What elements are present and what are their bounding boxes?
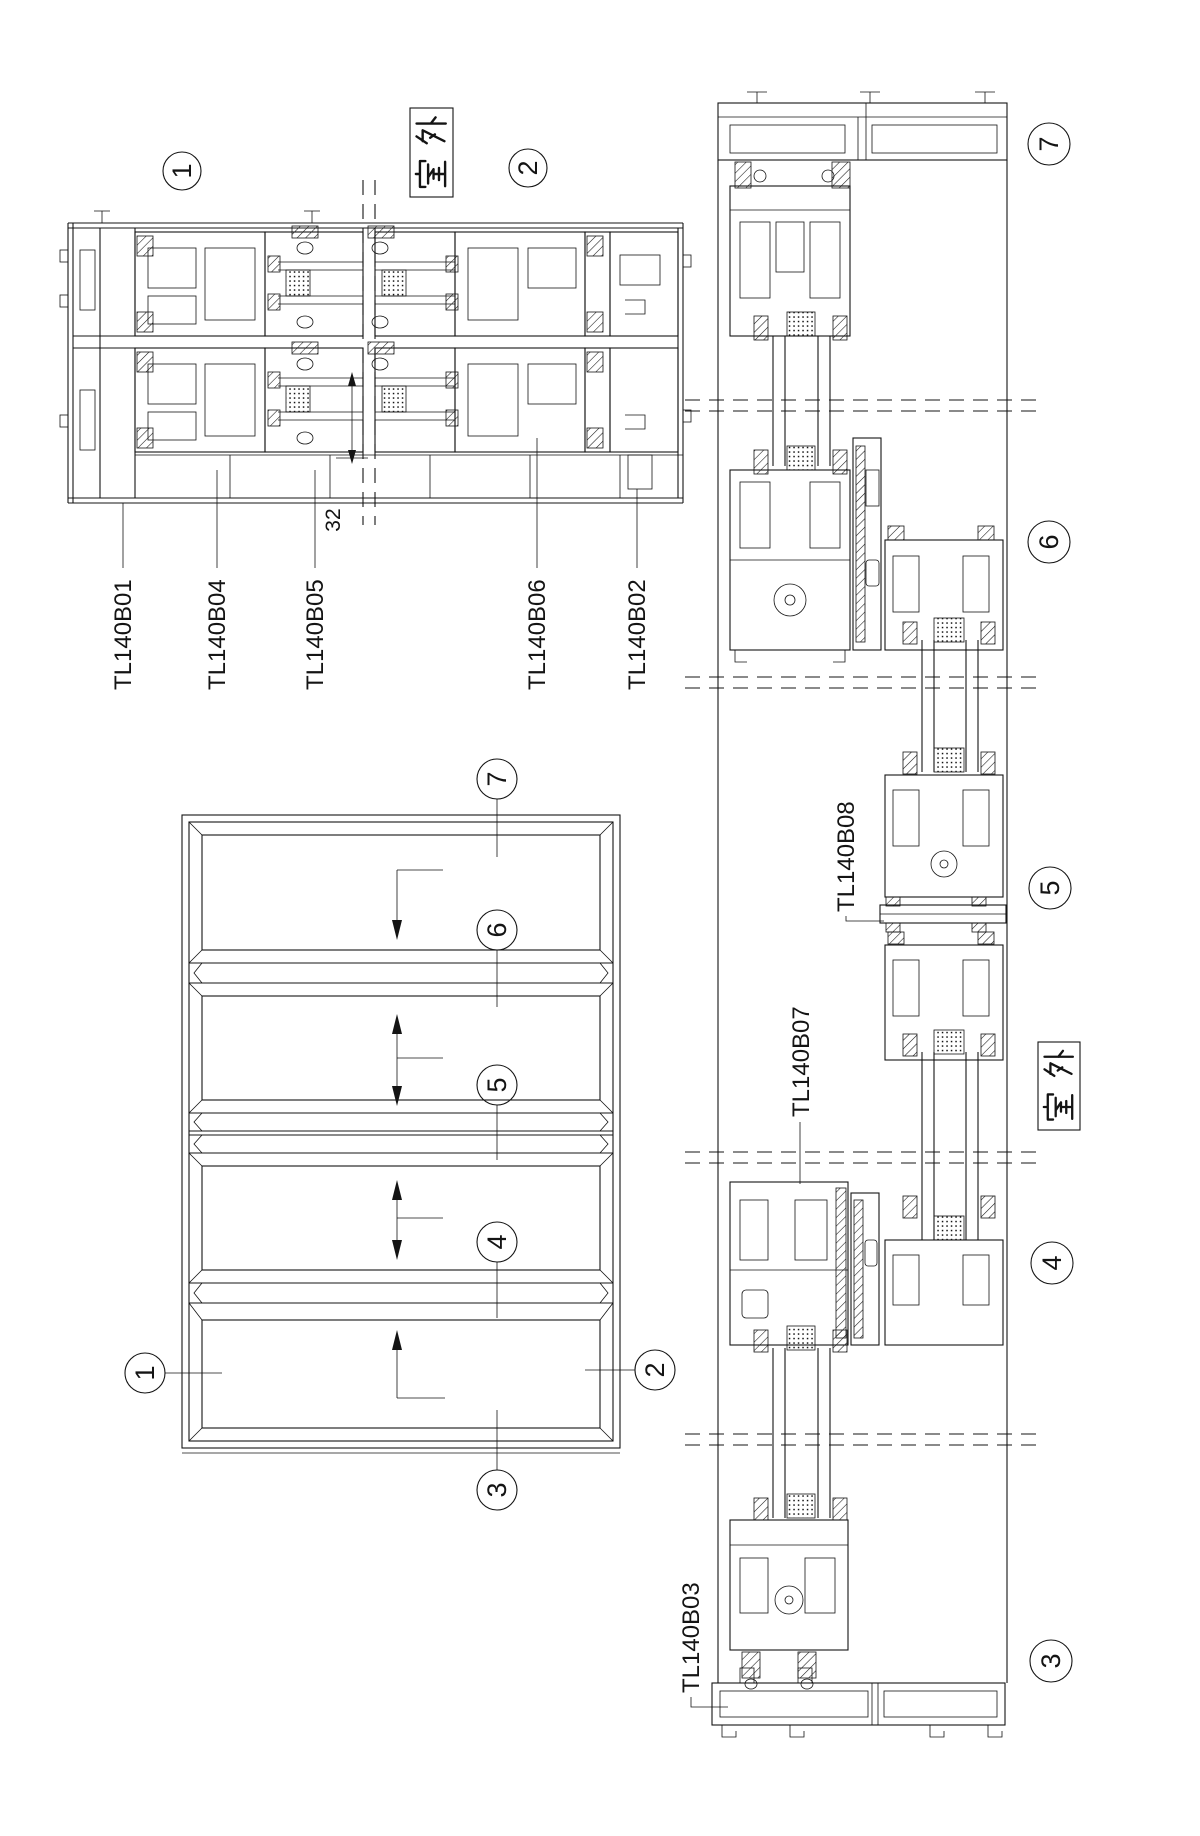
svg-text:4: 4 [1037,1255,1067,1270]
char-shi [416,161,445,187]
svg-text:1: 1 [167,163,197,178]
svg-text:6: 6 [1034,534,1064,549]
svg-text:TL140B05: TL140B05 [302,579,329,690]
drawing-sheet: 1 2 室外 [0,0,1200,1836]
slide-arrow-panel-c [392,1180,443,1260]
glass-d [773,1348,830,1518]
svg-text:7: 7 [482,771,512,786]
svg-text:TL140B08: TL140B08 [833,801,860,912]
sect-marker-6: 6 [1028,521,1070,563]
svg-text:1: 1 [130,1365,160,1380]
svg-text:6: 6 [482,922,512,937]
sect-marker-4: 4 [1031,1242,1073,1284]
elev-marker-1: 1 [125,1353,222,1393]
profile-label-tl140b03: TL140B03 [678,1582,728,1707]
profile-label-tl140b08: TL140B08 [833,801,884,921]
plan-section-drawing: 1 2 室外 [60,108,691,690]
svg-text:4: 4 [482,1234,512,1249]
vertical-section-drawing: 室外 7 6 5 4 3 TL140B08 TL140B07 TL140B03 [678,92,1080,1737]
profile-label-tl140b01: TL140B01 [110,503,137,690]
outdoor-label-box-section: 室外 [1038,1042,1080,1130]
svg-text:TL140B01: TL140B01 [110,579,137,690]
elevation-drawing: 7 6 5 4 3 1 2 [125,759,675,1510]
svg-text:TL140B02: TL140B02 [624,579,651,690]
outdoor-label-box-plan: 室外 [410,108,453,197]
glass-c [922,1052,978,1240]
svg-text:5: 5 [482,1077,512,1092]
char-shi [1044,1094,1072,1119]
svg-text:TL140B03: TL140B03 [678,1582,705,1693]
svg-text:32: 32 [322,508,345,531]
svg-text:2: 2 [513,160,543,175]
profile-label-tl140b07: TL140B07 [788,1006,815,1184]
svg-text:5: 5 [1035,880,1065,895]
elev-marker-6: 6 [477,910,517,1007]
svg-text:TL140B07: TL140B07 [788,1006,815,1117]
elev-marker-2: 2 [585,1350,675,1390]
plan-marker-2: 2 [509,149,547,187]
cad-drawing: 1 2 室外 [0,0,1200,1836]
sect-marker-7: 7 [1028,123,1070,165]
char-wai [417,117,446,143]
svg-text:2: 2 [640,1362,670,1377]
svg-text:7: 7 [1034,136,1064,151]
svg-text:3: 3 [1036,1653,1066,1668]
sect-marker-3: 3 [1030,1640,1072,1682]
profile-label-tl140b02: TL140B02 [624,489,651,690]
slide-arrow-panel-b [392,1014,443,1106]
svg-text:TL140B06: TL140B06 [524,579,551,690]
elev-marker-7: 7 [477,759,517,857]
plan-marker-1: 1 [163,152,201,190]
elev-marker-3: 3 [477,1410,517,1510]
slide-arrow-panel-top [392,870,443,940]
char-wai [1044,1051,1072,1076]
svg-text:3: 3 [482,1482,512,1497]
svg-text:TL140B04: TL140B04 [204,579,231,690]
sect-marker-5: 5 [1029,867,1071,909]
slide-arrow-panel-d [392,1330,445,1398]
profile-label-tl140b06: TL140B06 [524,438,551,690]
